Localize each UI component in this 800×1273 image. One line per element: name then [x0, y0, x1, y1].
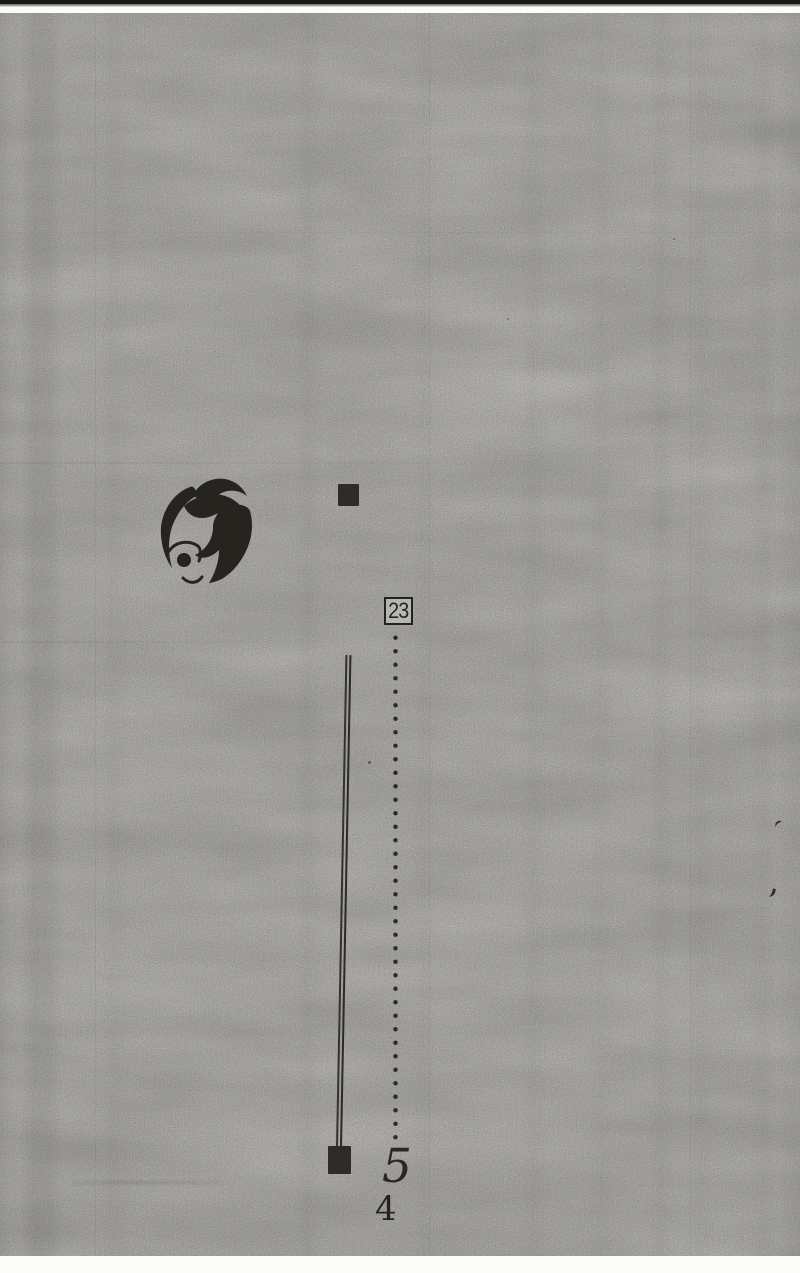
scan-speck — [773, 819, 784, 830]
paper-crease — [0, 462, 570, 464]
paper-grain-texture — [0, 13, 800, 1256]
ref-number-box: 23 — [384, 597, 413, 625]
scan-speck — [766, 887, 776, 898]
figure-number: 5 — [382, 1143, 412, 1190]
dotted-line-rule — [393, 631, 398, 1145]
ref-number: 23 — [388, 599, 408, 623]
paper-crease — [0, 232, 800, 233]
scanned-page: 23 5 4 — [0, 0, 800, 1273]
scan-streak — [95, 13, 96, 1256]
scan-speck — [368, 761, 371, 764]
scan-top-edge — [0, 0, 800, 7]
page-number: 4 — [375, 1192, 397, 1226]
scan-streak — [690, 13, 691, 1256]
double-line-rule — [336, 655, 351, 1147]
scan-speck — [507, 318, 509, 320]
ink-smudge — [72, 1180, 222, 1185]
paper-background: 23 5 4 — [0, 13, 800, 1256]
scan-speck — [673, 238, 675, 240]
top-square-marker — [338, 484, 359, 506]
bottom-square-marker — [328, 1146, 351, 1174]
paper-crease — [0, 641, 345, 643]
woman-face-swirl-hair-icon — [157, 478, 253, 592]
scan-streak — [429, 13, 430, 1256]
